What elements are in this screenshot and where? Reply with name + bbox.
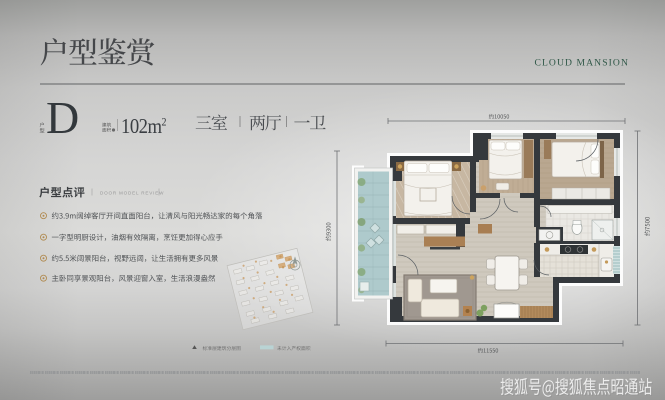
svg-text:102m2: 102m2	[121, 115, 166, 138]
svg-text:CLOUD MANSION: CLOUD MANSION	[534, 58, 629, 69]
svg-text:DOOR MODEL REVIEW: DOOR MODEL REVIEW	[100, 191, 164, 196]
svg-text:D: D	[46, 92, 79, 143]
